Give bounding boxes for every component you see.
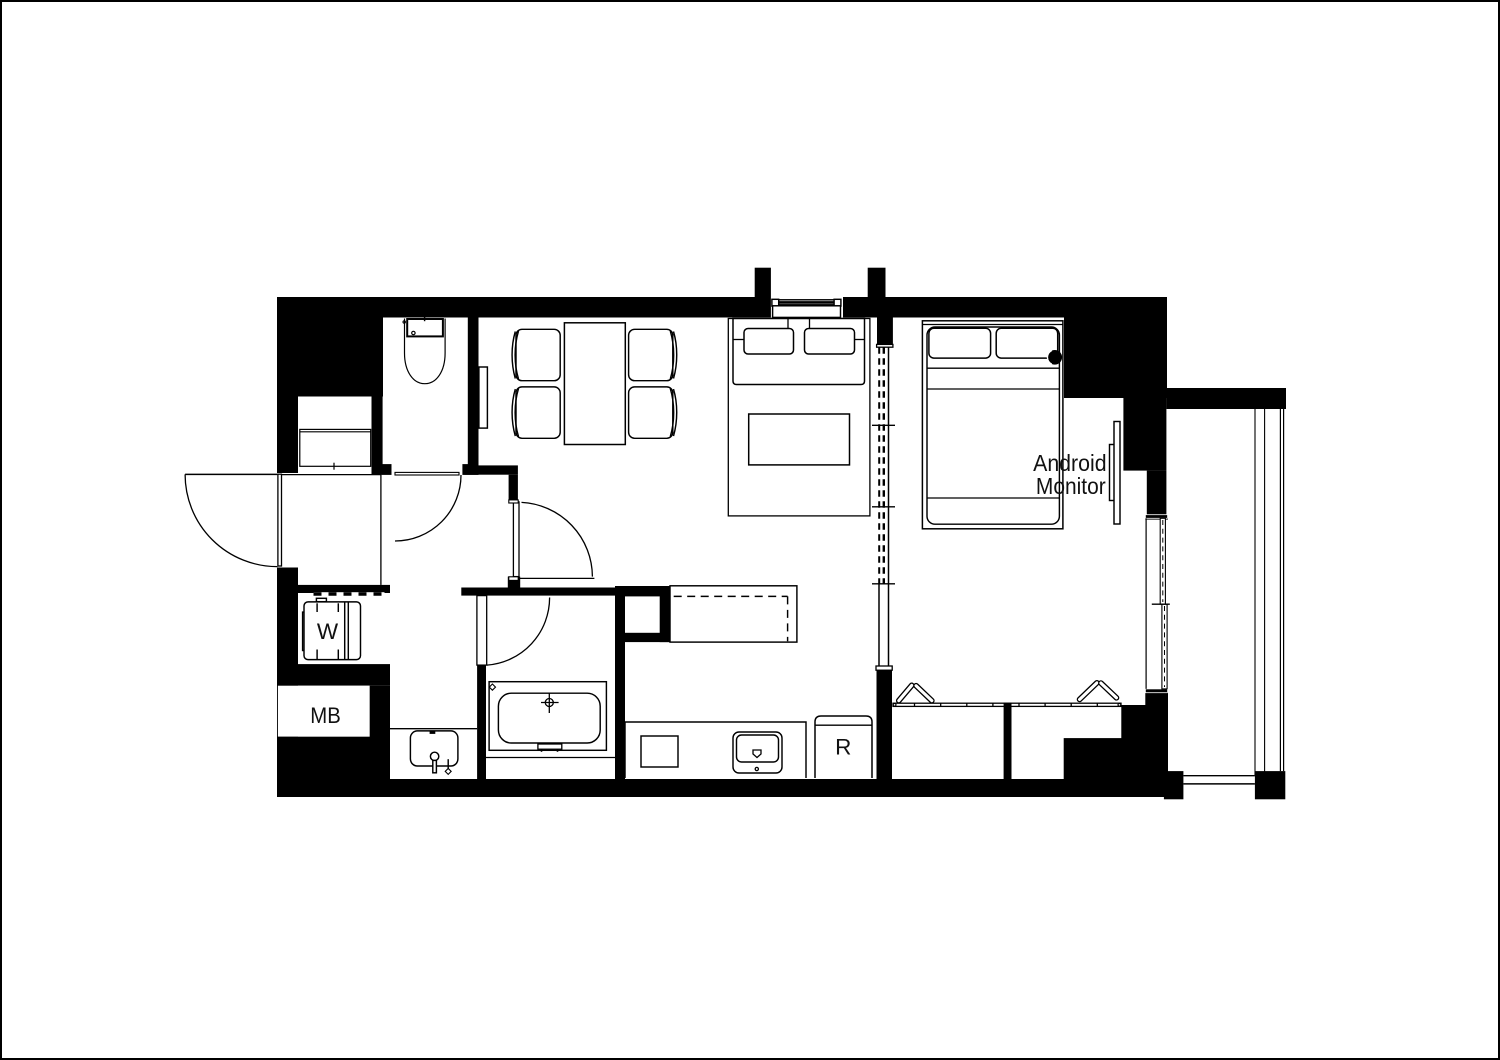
svg-text:R: R (835, 735, 851, 760)
svg-text:W: W (317, 619, 339, 644)
svg-text:Monitor: Monitor (1036, 473, 1106, 499)
svg-text:MB: MB (310, 703, 341, 728)
